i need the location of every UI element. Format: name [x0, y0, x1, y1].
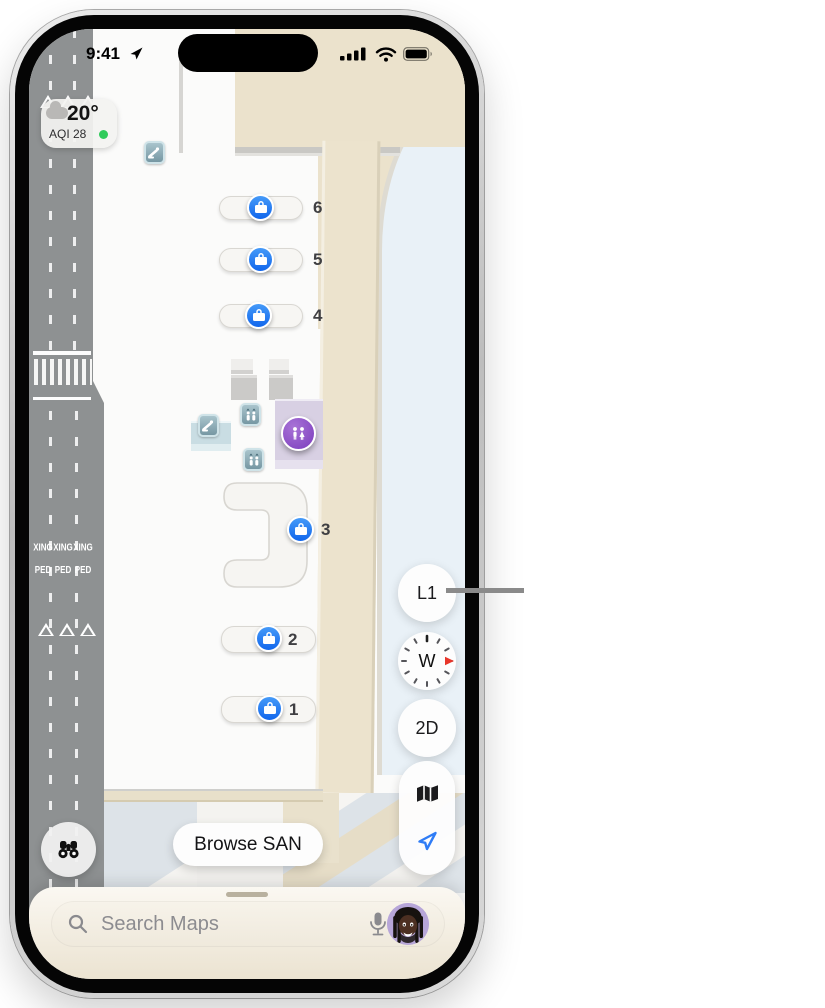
dynamic-island — [178, 34, 318, 72]
search-sheet — [29, 887, 465, 979]
battery-icon — [403, 47, 433, 61]
compass-direction: W — [419, 651, 436, 672]
cloud-icon — [46, 107, 68, 119]
iphone-bezel: XINGPED XINGPED XINGPED ↑ — [15, 15, 479, 993]
temperature: 20° — [67, 102, 99, 126]
callout-line — [446, 588, 524, 593]
claim-number: 4 — [313, 306, 322, 326]
baggage-claim-5[interactable]: 5 — [219, 248, 303, 272]
baggage-claim-icon — [256, 695, 283, 722]
view-mode-label: 2D — [415, 718, 438, 739]
maps-app-screen: XINGPED XINGPED XINGPED ↑ — [29, 29, 465, 979]
status-time: 9:41 — [73, 44, 133, 64]
terminal-walkway-strip — [316, 141, 381, 794]
baggage-claim-icon — [247, 194, 274, 221]
crosswalk — [34, 359, 92, 385]
lookaround-button[interactable] — [41, 822, 96, 877]
level-label: L1 — [417, 583, 437, 604]
structure-block — [269, 359, 289, 374]
structure-block — [269, 375, 293, 400]
search-input[interactable] — [99, 912, 368, 937]
baggage-claim-4[interactable]: 4 — [219, 304, 303, 328]
track-location-icon[interactable] — [416, 829, 439, 852]
baggage-claim-6[interactable]: 6 — [219, 196, 303, 220]
map-tools-pill — [399, 761, 455, 875]
claim-number: 3 — [321, 520, 330, 540]
sheet-drag-handle[interactable] — [226, 892, 268, 897]
signal-bars-icon — [340, 47, 368, 61]
yield-marking — [59, 623, 75, 636]
baggage-claim-icon — [245, 302, 272, 329]
view-mode-button[interactable]: 2D — [398, 699, 456, 757]
aqi-status-dot — [99, 130, 108, 139]
claim-number: 2 — [288, 630, 297, 650]
baggage-claim-icon — [247, 246, 274, 273]
compass[interactable]: W — [398, 632, 456, 690]
level-button[interactable]: L1 — [398, 564, 456, 622]
documentation-canvas: { "status_bar": { "time": "9:41" }, "wea… — [0, 0, 825, 1008]
restroom-icon[interactable] — [281, 416, 316, 451]
baggage-claim-icon — [287, 516, 314, 543]
weather-widget[interactable]: 20° AQI 28 — [41, 99, 117, 148]
escalator-icon[interactable] — [144, 141, 165, 164]
xing-ped-marking: XINGPED — [70, 542, 96, 576]
yield-marking — [38, 623, 54, 636]
aqi-label: AQI 28 — [49, 127, 86, 141]
terminal-south-wall — [99, 789, 323, 802]
baggage-claim-icon — [255, 625, 282, 652]
escalator-icon[interactable] — [198, 414, 219, 437]
wifi-icon — [375, 47, 397, 62]
lane-dashes — [73, 29, 76, 351]
claim-number: 6 — [313, 198, 322, 218]
browse-airport-button[interactable]: Browse SAN — [173, 823, 323, 866]
binoculars-icon — [55, 839, 82, 861]
baggage-claim-3[interactable]: 3 — [221, 481, 313, 589]
search-bar[interactable] — [51, 901, 445, 947]
browse-label: Browse SAN — [194, 834, 302, 856]
claim-number: 1 — [289, 700, 298, 720]
structure-block — [231, 375, 257, 400]
baggage-claim-2[interactable]: 2 — [221, 626, 316, 653]
magnifier-icon — [67, 913, 89, 935]
iphone-frame: XINGPED XINGPED XINGPED ↑ — [10, 10, 484, 998]
baggage-claim-1[interactable]: 1 — [221, 696, 316, 723]
microphone-icon[interactable] — [368, 911, 388, 937]
stop-line — [33, 397, 91, 400]
claim-number: 5 — [313, 250, 322, 270]
elevator-icon[interactable] — [240, 403, 261, 426]
map-mode-icon[interactable] — [415, 784, 440, 803]
structure-block — [231, 359, 253, 374]
yield-marking — [80, 623, 96, 636]
lane-dashes — [49, 29, 52, 351]
location-arrow-icon — [129, 46, 144, 61]
stop-line — [33, 351, 91, 355]
terminal-wall-seam — [179, 57, 183, 153]
memoji-avatar[interactable] — [387, 903, 429, 945]
elevator-icon[interactable] — [243, 448, 264, 471]
